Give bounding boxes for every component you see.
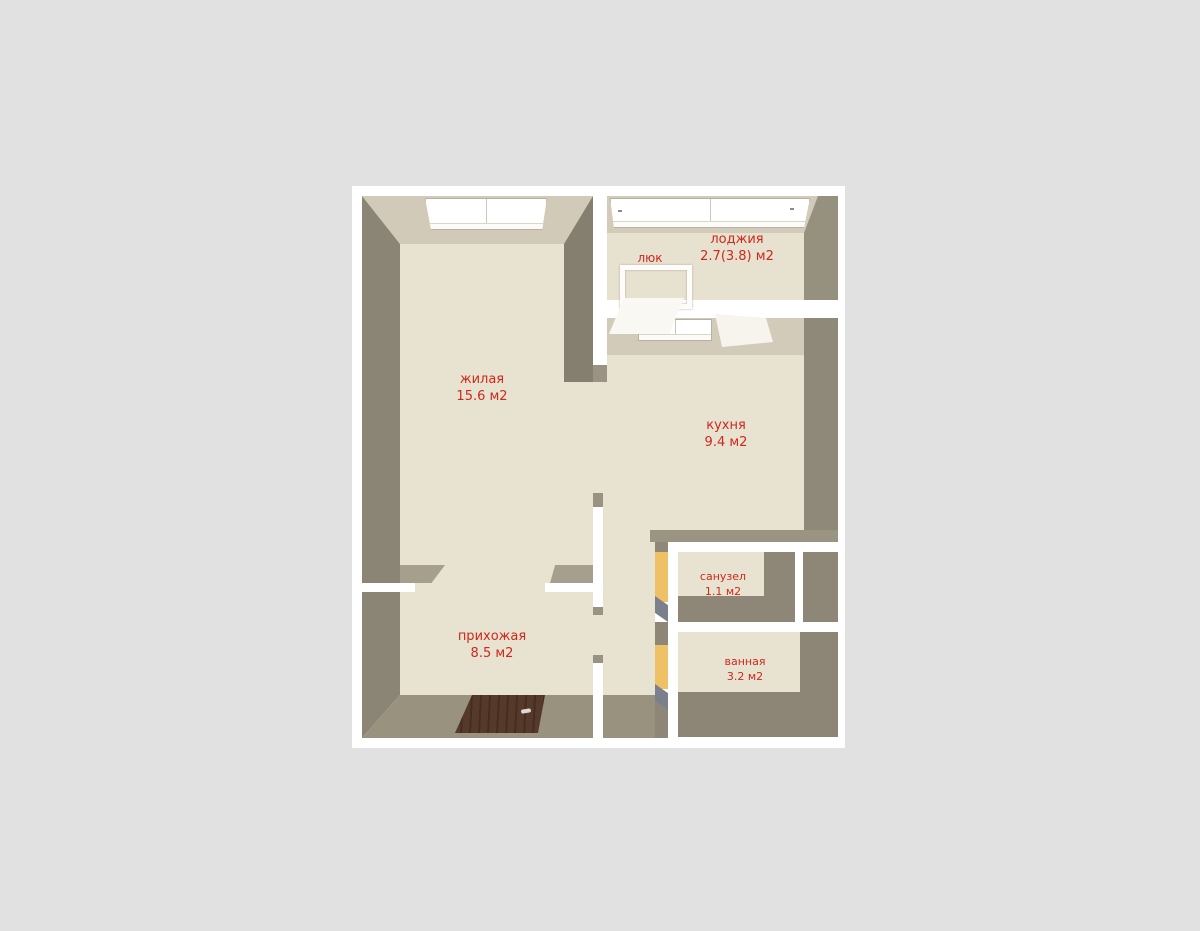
bottom-wall-gap — [593, 695, 603, 748]
kitchen-right-wall — [804, 318, 838, 552]
loggia-window — [610, 198, 810, 228]
room-name: прихожая — [442, 628, 542, 645]
room-area: 8.5 м2 — [442, 645, 542, 662]
living-room-window — [425, 198, 547, 230]
wall-corner-piece — [655, 542, 668, 552]
wall-stub-cap — [593, 365, 607, 382]
room-name: люк — [628, 250, 672, 267]
bathroom-label: ванная 3.2 м2 — [705, 654, 785, 684]
living-loggia-wall-cut — [593, 196, 607, 365]
room-area: 15.6 м2 — [432, 388, 532, 405]
room-area: 9.4 м2 — [676, 434, 776, 451]
wc-bath-wall-cut — [678, 622, 838, 632]
wc-door-open — [655, 552, 668, 602]
living-room-label: жилая 15.6 м2 — [432, 371, 532, 405]
floor-plan: лоджия 2.7(3.8) м2 люк жилая 15.6 м2 кух… — [352, 186, 845, 748]
kitchen-wc-wall-cut — [668, 542, 838, 552]
hatch-label: люк — [628, 250, 672, 267]
room-area: 3.2 м2 — [705, 669, 785, 684]
ventilation-duct-block — [803, 552, 838, 622]
wc-duct-wall-cut — [795, 552, 803, 622]
left-outer-wall — [362, 196, 400, 738]
window-handle-icon — [790, 208, 794, 210]
hall-doorway-wall-right — [545, 583, 600, 592]
wall-stub-cap — [593, 493, 603, 507]
hall-doorway-stub-right — [550, 565, 593, 583]
hall-doorway-wall-left — [362, 583, 415, 592]
wall-stub-cap — [593, 607, 603, 615]
living-kitchen-passage-floor — [593, 380, 607, 507]
room-area: 2.7(3.8) м2 — [677, 248, 797, 265]
room-name: лоджия — [677, 231, 797, 248]
room-area: 1.1 м2 — [683, 584, 763, 599]
hallway-label: прихожая 8.5 м2 — [442, 628, 542, 662]
window-sill — [639, 334, 711, 340]
room-name: жилая — [432, 371, 532, 388]
window-sill — [611, 221, 809, 227]
room-name: кухня — [676, 417, 776, 434]
kitchen-label: кухня 9.4 м2 — [676, 417, 776, 451]
window-sill — [426, 223, 546, 229]
hall-wc-wall-cut — [668, 542, 678, 748]
wall-between-doors — [655, 622, 668, 645]
loggia-label: лоджия 2.7(3.8) м2 — [677, 231, 797, 265]
room-name: санузел — [683, 569, 763, 584]
hall-wall-cut — [593, 663, 603, 695]
living-hall-wall-cut — [593, 507, 603, 607]
wall-stub-cap — [593, 655, 603, 663]
wc-label: санузел 1.1 м2 — [683, 569, 763, 599]
room-name: ванная — [705, 654, 785, 669]
kitchen-bottom-wall-top-face — [650, 530, 838, 542]
bath-door-open — [655, 645, 668, 689]
window-handle-icon — [618, 210, 622, 212]
page-background: { "page": { "background_color": "#e1e1e1… — [0, 0, 1200, 931]
